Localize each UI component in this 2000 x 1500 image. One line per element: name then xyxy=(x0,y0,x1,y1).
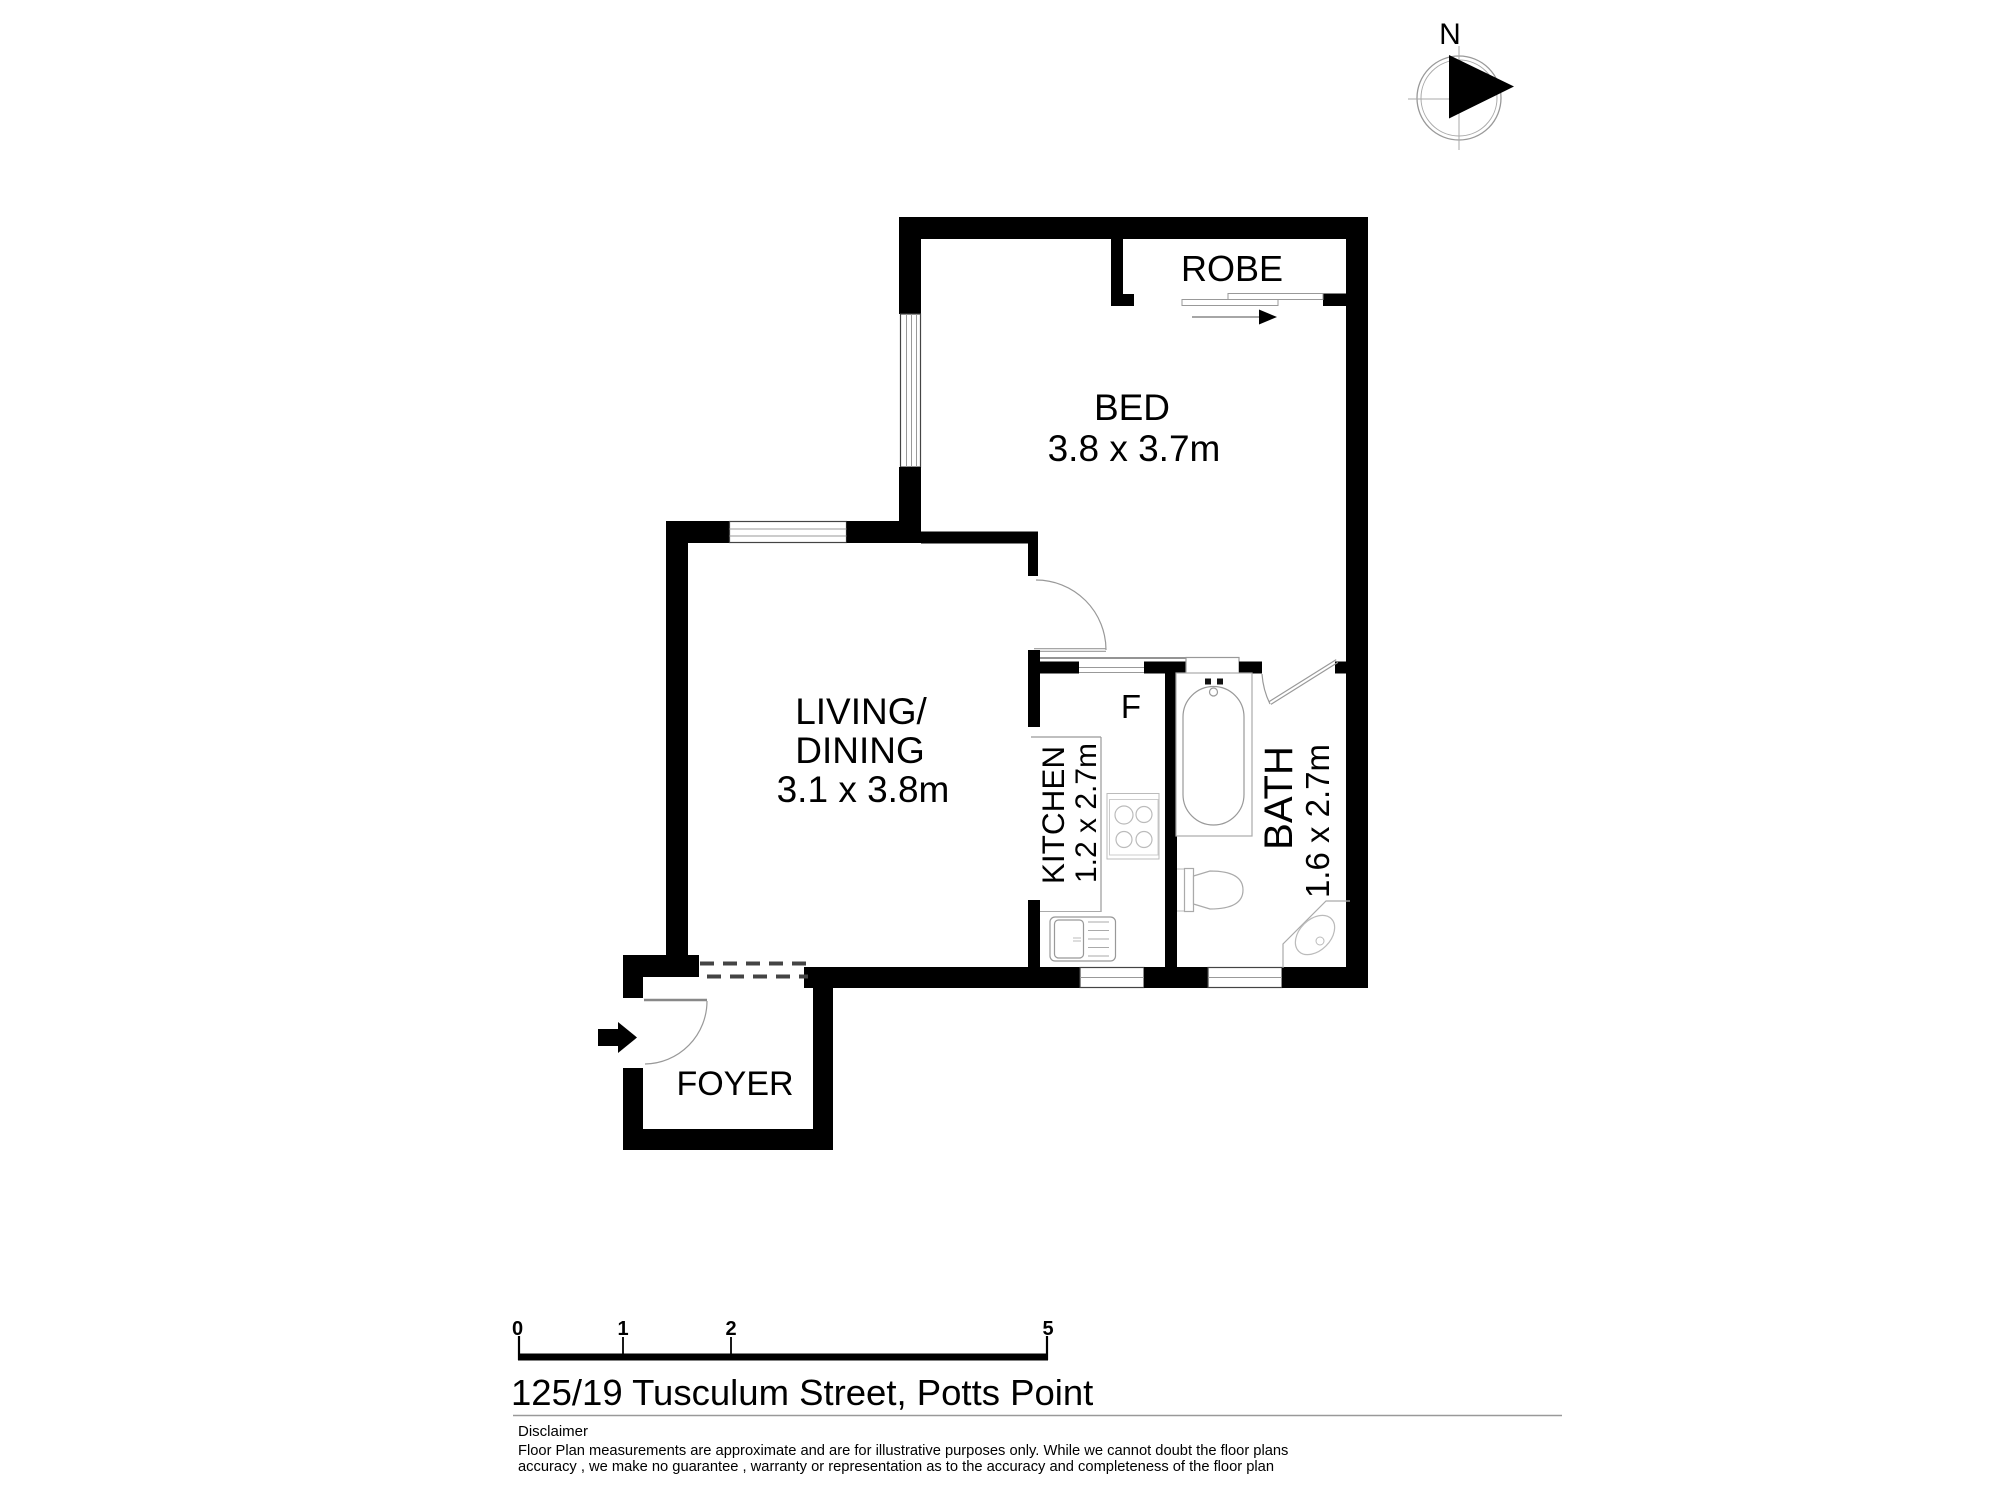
svg-text:Floor Plan measurements are ap: Floor Plan measurements are approximate … xyxy=(518,1443,1288,1459)
svg-text:Disclaimer: Disclaimer xyxy=(518,1423,588,1440)
svg-text:ROBE: ROBE xyxy=(1181,248,1283,289)
svg-text:3.8 x 3.7m: 3.8 x 3.7m xyxy=(1048,428,1221,469)
svg-text:5: 5 xyxy=(1042,1318,1053,1340)
svg-text:125/19 Tusculum Street, Potts: 125/19 Tusculum Street, Potts Point xyxy=(511,1372,1093,1413)
svg-text:1.2 x 2.7m: 1.2 x 2.7m xyxy=(1070,743,1103,883)
svg-text:BATH: BATH xyxy=(1257,746,1301,850)
svg-text:DINING: DINING xyxy=(795,730,925,771)
svg-text:1: 1 xyxy=(617,1318,628,1340)
svg-text:LIVING/: LIVING/ xyxy=(795,691,927,732)
svg-text:F: F xyxy=(1121,688,1141,725)
svg-text:accuracy , we make no guarante: accuracy , we make no guarantee , warran… xyxy=(518,1459,1274,1475)
svg-text:0: 0 xyxy=(512,1318,523,1340)
svg-text:FOYER: FOYER xyxy=(676,1065,793,1103)
svg-text:KITCHEN: KITCHEN xyxy=(1035,746,1071,884)
svg-text:2: 2 xyxy=(725,1318,736,1340)
svg-text:3.1 x 3.8m: 3.1 x 3.8m xyxy=(777,769,950,810)
svg-text:BED: BED xyxy=(1094,387,1170,428)
svg-text:1.6 x 2.7m: 1.6 x 2.7m xyxy=(1299,744,1336,898)
svg-text:N: N xyxy=(1439,18,1461,51)
